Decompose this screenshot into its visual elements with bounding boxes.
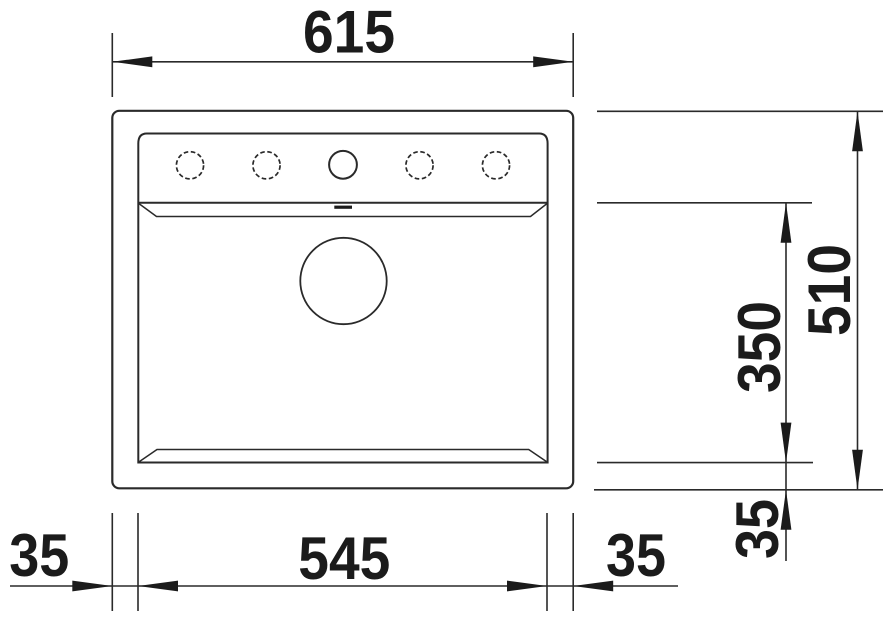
svg-text:350: 350 (726, 301, 793, 393)
svg-text:510: 510 (796, 244, 863, 336)
svg-text:545: 545 (298, 525, 390, 592)
svg-text:35: 35 (606, 522, 666, 589)
svg-text:35: 35 (9, 522, 69, 589)
svg-text:615: 615 (303, 0, 395, 66)
svg-text:35: 35 (724, 499, 791, 559)
